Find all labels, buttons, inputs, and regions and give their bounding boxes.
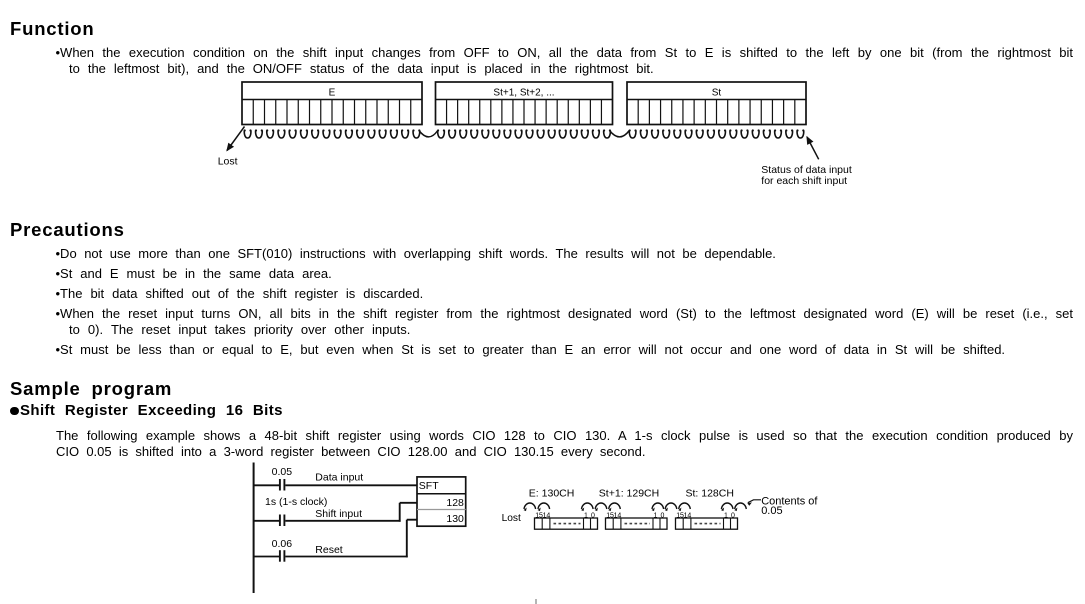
svg-text:0.05: 0.05 <box>761 505 782 517</box>
svg-text:E: 130CH: E: 130CH <box>529 488 575 500</box>
svg-text:Lost: Lost <box>218 156 238 168</box>
svg-text:0.05: 0.05 <box>272 466 293 478</box>
svg-text:for each shift input: for each shift input <box>761 175 847 187</box>
svg-text:0: 0 <box>591 513 595 520</box>
svg-text:1514: 1514 <box>535 513 550 520</box>
svg-text:1514: 1514 <box>676 513 691 520</box>
svg-text:Lost: Lost <box>502 513 521 524</box>
svg-text:0: 0 <box>731 513 735 520</box>
svg-text:Shift input: Shift input <box>315 508 362 520</box>
svg-text:St: St <box>712 87 722 98</box>
svg-text:St+1: 129CH: St+1: 129CH <box>599 488 659 500</box>
svg-text:St+1, St+2, ...: St+1, St+2, ... <box>493 87 554 98</box>
svg-text:E: E <box>329 87 336 98</box>
svg-text:1: 1 <box>584 513 588 520</box>
svg-text:128: 128 <box>446 497 464 509</box>
svg-text:1: 1 <box>654 513 658 520</box>
svg-text:130: 130 <box>446 513 464 525</box>
svg-text:1s (1-s clock): 1s (1-s clock) <box>265 496 327 508</box>
svg-text:1: 1 <box>724 513 728 520</box>
svg-text:1514: 1514 <box>606 513 621 520</box>
svg-text:St: 128CH: St: 128CH <box>686 488 734 500</box>
svg-text:0: 0 <box>661 513 665 520</box>
svg-text:SFT: SFT <box>419 480 439 492</box>
svg-text:Data input: Data input <box>315 471 363 483</box>
svg-text:Reset: Reset <box>315 544 343 556</box>
svg-text:0.06: 0.06 <box>272 538 293 550</box>
